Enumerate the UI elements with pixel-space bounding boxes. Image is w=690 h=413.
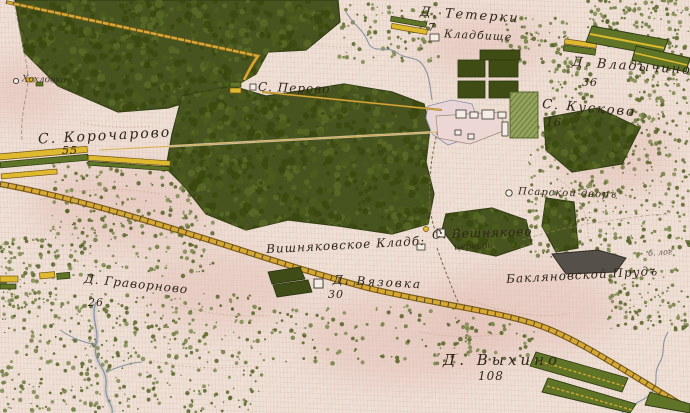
label-veshnyakovo-sub: церковь — [454, 241, 493, 253]
number-vykhino: 108 — [478, 369, 504, 383]
number-korochartovo: 55 — [62, 144, 78, 157]
kuskovo-estate — [436, 50, 538, 144]
cemetery-icon — [430, 34, 439, 41]
number-vladychino: 36 — [582, 76, 598, 89]
map-canvas: Д. Тетерки 7 Кладбище /* object bind fix… — [0, 0, 690, 413]
label-khokhlovka: Хохловка — [22, 74, 66, 86]
psarskoy-dvor-icon — [506, 190, 512, 196]
church-icon — [423, 226, 428, 231]
label-perovo: С. Перово — [258, 80, 331, 97]
number-teterki: 7 — [428, 21, 436, 34]
khokhlovka-icon — [13, 78, 18, 83]
number-kuskovo: 16 — [546, 116, 562, 129]
number-vyazovka: 30 — [328, 288, 344, 301]
label-vykhino: Д. Выхино — [443, 351, 561, 369]
number-gravornovo: 26 — [88, 296, 104, 309]
label-b-log: б. лог — [648, 247, 672, 258]
